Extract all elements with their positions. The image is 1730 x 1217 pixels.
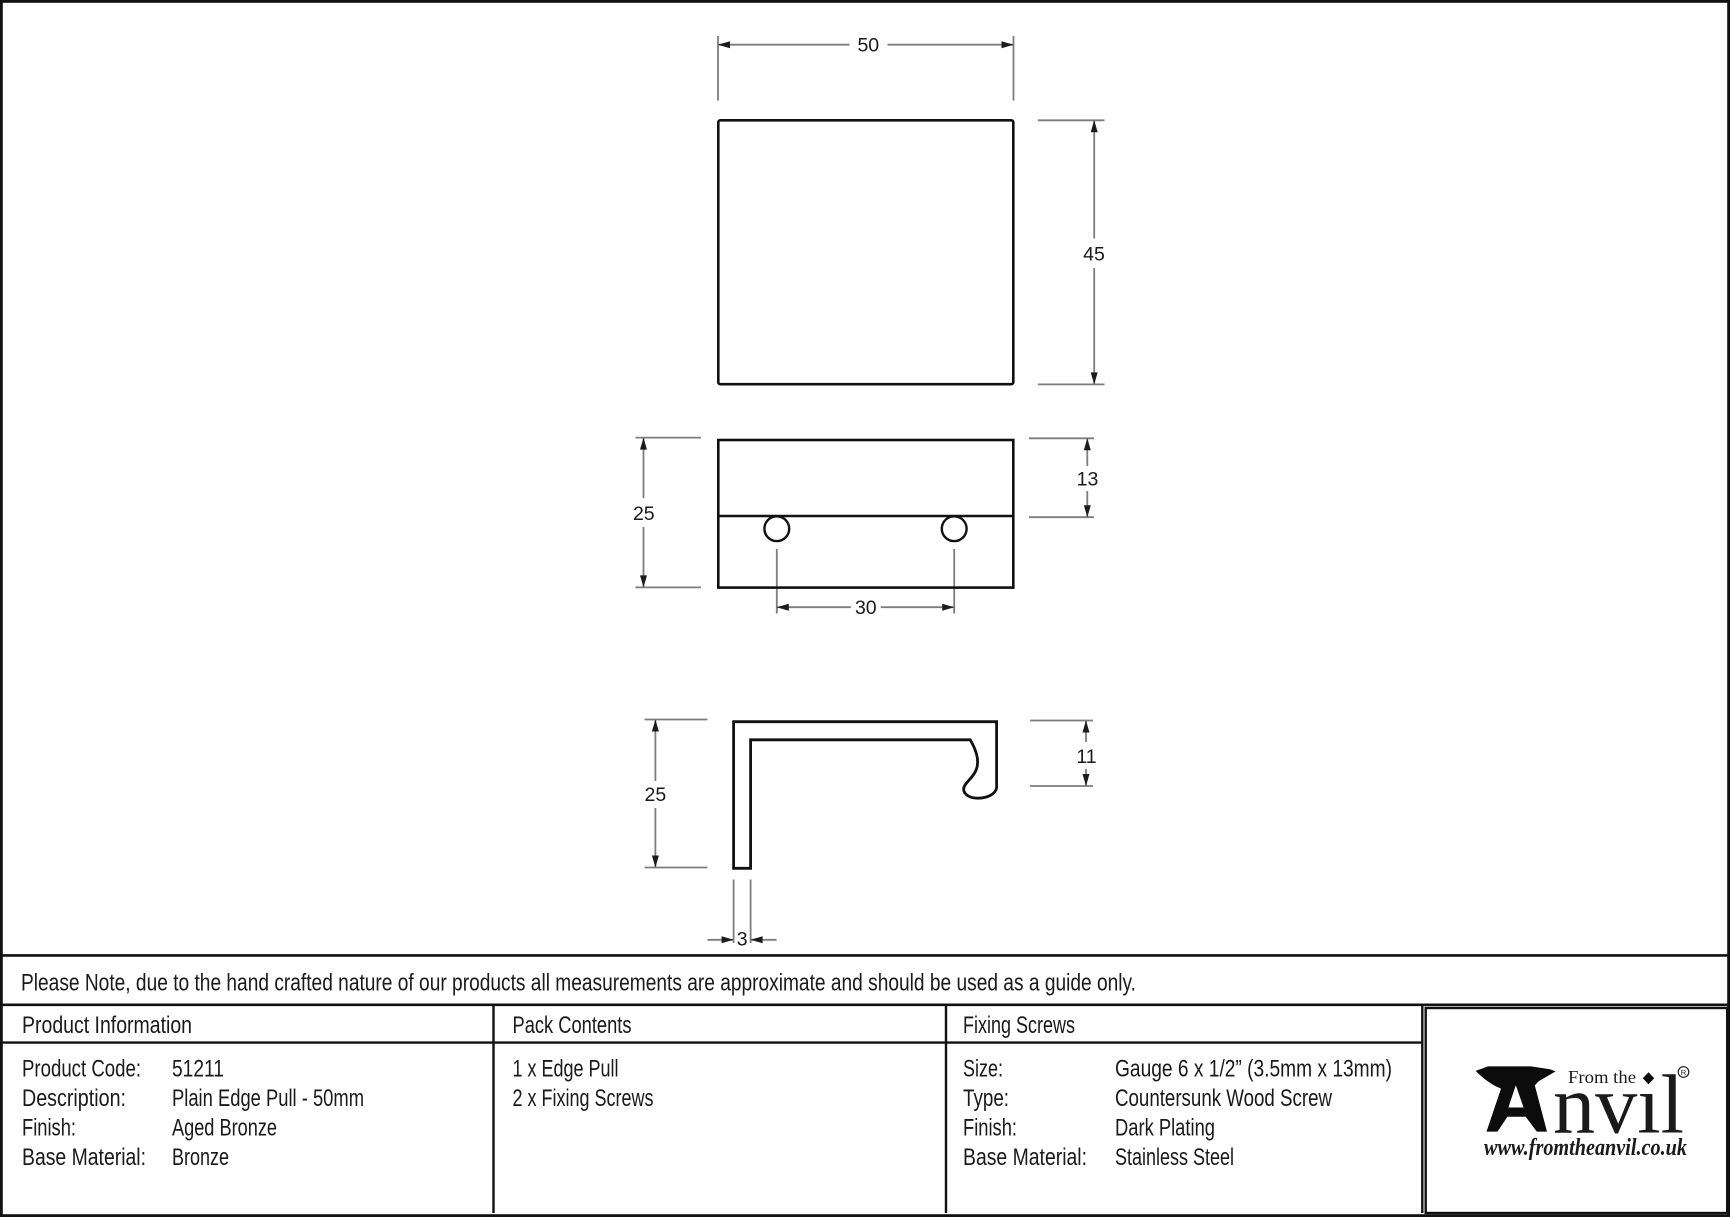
svg-text:Base Material:: Base Material:: [22, 1144, 146, 1171]
svg-text:Countersunk Wood Screw: Countersunk Wood Screw: [1115, 1085, 1333, 1112]
svg-text:Finish:: Finish:: [22, 1115, 76, 1142]
svg-text:Base Material:: Base Material:: [963, 1144, 1087, 1171]
svg-text:Pack Contents: Pack Contents: [513, 1012, 632, 1039]
svg-text:25: 25: [645, 784, 667, 806]
svg-text:R: R: [1681, 1068, 1687, 1077]
svg-text:Aged Bronze: Aged Bronze: [172, 1115, 277, 1142]
svg-text:Bronze: Bronze: [172, 1144, 229, 1171]
svg-text:Gauge 6 x 1/2” (3.5mm x 13mm): Gauge 6 x 1/2” (3.5mm x 13mm): [1115, 1056, 1392, 1083]
svg-text:Stainless Steel: Stainless Steel: [1115, 1144, 1234, 1171]
svg-text:Finish:: Finish:: [963, 1115, 1017, 1142]
svg-text:2 x Fixing Screws: 2 x Fixing Screws: [513, 1085, 654, 1112]
svg-text:3: 3: [737, 929, 748, 951]
svg-text:Size:: Size:: [963, 1056, 1003, 1083]
svg-text:www.fromtheanvil.co.uk: www.fromtheanvil.co.uk: [1484, 1135, 1687, 1161]
svg-text:Product Information: Product Information: [22, 1012, 192, 1039]
svg-text:45: 45: [1083, 243, 1105, 265]
svg-text:13: 13: [1077, 468, 1099, 490]
svg-text:11: 11: [1076, 746, 1096, 768]
svg-text:Product Code:: Product Code:: [22, 1056, 141, 1083]
svg-text:1 x Edge Pull: 1 x Edge Pull: [513, 1056, 619, 1083]
svg-text:Dark Plating: Dark Plating: [1115, 1115, 1215, 1142]
svg-text:Type:: Type:: [963, 1085, 1009, 1112]
svg-text:30: 30: [855, 597, 877, 619]
svg-text:Please Note, due to the hand c: Please Note, due to the hand crafted nat…: [21, 970, 1136, 997]
svg-text:Fixing Screws: Fixing Screws: [963, 1012, 1075, 1039]
svg-text:50: 50: [857, 35, 879, 57]
svg-text:Plain Edge Pull - 50mm: Plain Edge Pull - 50mm: [172, 1085, 364, 1112]
svg-text:25: 25: [633, 503, 655, 525]
svg-text:Description:: Description:: [22, 1085, 126, 1112]
svg-text:51211: 51211: [172, 1056, 224, 1083]
